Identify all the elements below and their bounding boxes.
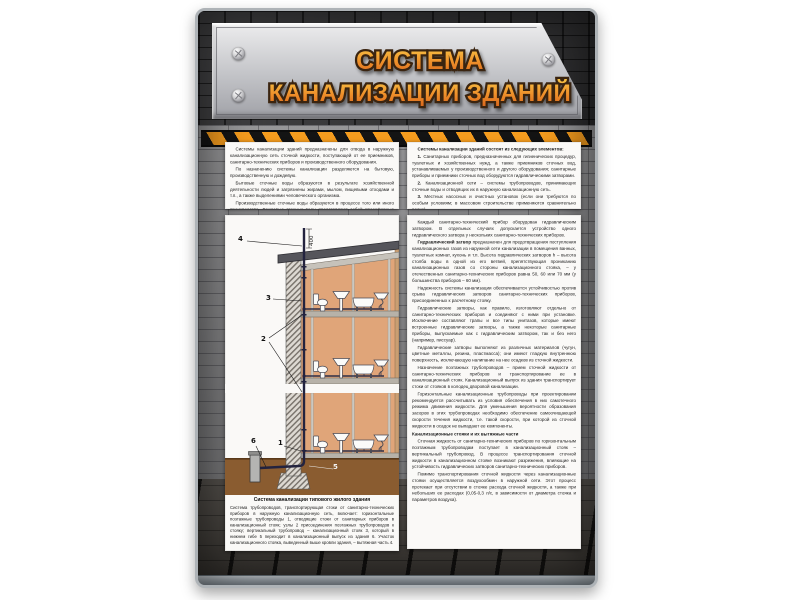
paragraph: Каждый санитарно-технический прибор обор… xyxy=(412,219,576,238)
paragraph: Надежность системы канализации обеспечив… xyxy=(412,285,576,304)
metal-title-plate: СИСТЕМА КАНАЛИЗАЦИИ ЗДАНИЙ xyxy=(212,23,582,119)
sewerage-poster: СИСТЕМА КАНАЛИЗАЦИИ ЗДАНИЙ Системы канал… xyxy=(195,8,598,588)
paragraph: 2. Канализационной сети – системы трубоп… xyxy=(412,180,576,193)
callout-label-stack: 3 xyxy=(266,294,271,302)
callout-label-outlet: 6 xyxy=(251,437,256,445)
callout-label-bend: 5 xyxy=(333,463,338,471)
paragraph: Сточная жидкость от санитарно-технически… xyxy=(412,438,576,470)
paragraph: Гидравлические затворы, как правило, изг… xyxy=(412,305,576,343)
section-heading: Канализационные стояки и их вытяжные час… xyxy=(412,431,576,437)
callout-label-vent: 4 xyxy=(238,235,243,243)
diagram-caption: Система канализации типового жилого здан… xyxy=(225,496,399,586)
callout-label-floor-pipe: 1 xyxy=(278,439,283,447)
page: СИСТЕМА КАНАЛИЗАЦИИ ЗДАНИЙ Системы канал… xyxy=(0,0,800,600)
paragraph: По назначению системы канализации раздел… xyxy=(230,166,394,179)
building-interior xyxy=(301,252,399,453)
paragraph: Гидравлические затворы выполняют из разл… xyxy=(412,344,576,363)
title-line-1: СИСТЕМА xyxy=(356,47,484,75)
paragraph: Горизонтальные канализационные трубопров… xyxy=(412,391,576,429)
poster-title: СИСТЕМА КАНАЛИЗАЦИИ ЗДАНИЙ xyxy=(212,23,582,119)
dimension-label: 400 xyxy=(309,236,315,247)
intro-panel: Системы канализации зданий предназначены… xyxy=(225,142,399,209)
title-line-2: КАНАЛИЗАЦИИ ЗДАНИЙ xyxy=(269,79,571,107)
paragraph: 1. Санитарных приборов, предназначенных … xyxy=(412,153,576,179)
left-wall xyxy=(286,257,301,476)
caption-text: Система трубопроводов, транспортирующая … xyxy=(230,505,394,546)
elements-heading: Системы канализации зданий состоят из сл… xyxy=(412,146,576,152)
paragraph: Помимо транспортирования сточной жидкост… xyxy=(412,471,576,503)
paragraph: Производственные сточные воды образуются… xyxy=(230,200,394,209)
caption-title: Система канализации типового жилого здан… xyxy=(230,497,394,503)
section-break-band xyxy=(225,384,399,393)
elements-list: 1. Санитарных приборов, предназначенных … xyxy=(412,153,576,209)
elements-panel: Системы канализации зданий состоят из сл… xyxy=(407,142,581,209)
paragraph: Назначение поэтажных трубопроводов – при… xyxy=(412,364,576,390)
diagram-area: 4 400 3 2 6 1 5 xyxy=(225,215,399,497)
intro-text: Системы канализации зданий предназначены… xyxy=(230,146,394,209)
main-text-panel: Каждый санитарно-технический прибор обор… xyxy=(407,215,581,549)
diagram-panel: 4 400 3 2 6 1 5 Система канализации типо… xyxy=(225,215,399,551)
paragraph: Гидравлический затвор предназначен для п… xyxy=(412,239,576,284)
paragraph: Бытовые сточные воды образуются в резуль… xyxy=(230,180,394,199)
callout-label-junctions: 2 xyxy=(261,335,266,343)
paragraph: Системы канализации зданий предназначены… xyxy=(230,146,394,165)
main-text: Каждый санитарно-технический прибор обор… xyxy=(412,219,576,503)
inspection-well xyxy=(250,454,260,482)
paragraph: 3. Местных насосных и очистных установок… xyxy=(412,194,576,209)
building-section-diagram xyxy=(225,215,399,497)
right-wall xyxy=(395,249,399,453)
